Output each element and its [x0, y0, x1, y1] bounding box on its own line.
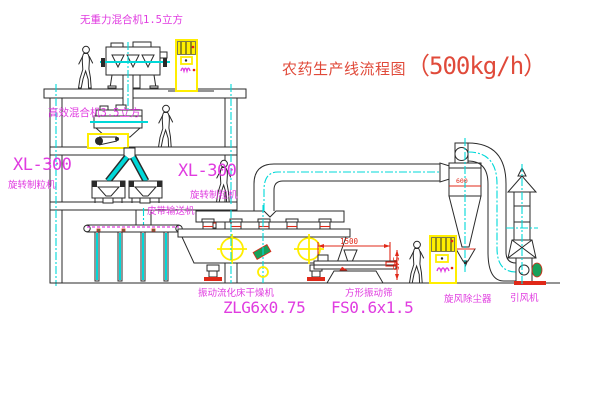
- diagram-title: 农药生产线流程图 （500kg/h）: [282, 46, 546, 81]
- dimension-600: 600: [456, 178, 468, 185]
- person-figure: [79, 46, 93, 88]
- label-granulator-left: 旋转制粒机: [8, 181, 56, 191]
- dimension-545: 545: [392, 257, 400, 271]
- label-sieve-model: FS0.6x1.5: [331, 300, 413, 316]
- granulator-left: [92, 181, 125, 203]
- y-chute: [108, 157, 146, 181]
- control-cabinet-top: [168, 40, 214, 91]
- label-xl300-right: XL-300: [178, 163, 236, 180]
- title-capacity: （500kg/h）: [406, 46, 546, 81]
- label-second-mixer: 高效混合机3.5立方: [48, 108, 140, 119]
- person-figure: [410, 241, 424, 283]
- label-xl300-left: XL-300: [13, 157, 71, 174]
- granulator-right: [129, 181, 162, 203]
- conveyor-legs: [95, 232, 168, 281]
- label-dryer-model: ZLG6x0.75: [223, 300, 305, 316]
- dryer-legs: [204, 265, 325, 281]
- gravity-free-mixer: [100, 42, 170, 88]
- person-figure: [159, 105, 173, 147]
- dryer-discharge-chute: [344, 250, 357, 262]
- label-top-mixer: 无重力混合机1.5立方: [80, 15, 183, 26]
- fan-motor: [532, 263, 542, 277]
- fluid-bed-dryer: [178, 205, 357, 283]
- label-belt-conveyor: 皮带输送机: [147, 207, 195, 217]
- induced-draft-fan: [514, 258, 546, 285]
- label-fan: 引风机: [510, 294, 539, 304]
- dimension-1500: 1500: [340, 238, 358, 246]
- process-flow-diagram: 农药生产线流程图 （500kg/h） 无重力混合机1.5立方 高效混合机3.5立…: [0, 0, 600, 403]
- label-cyclone: 旋风除尘器: [444, 295, 492, 305]
- title-chinese: 农药生产线流程图: [282, 58, 406, 79]
- label-granulator-right: 旋转制粒机: [190, 191, 238, 201]
- control-cabinet-right: [430, 236, 456, 283]
- exhaust-duct: [254, 163, 462, 211]
